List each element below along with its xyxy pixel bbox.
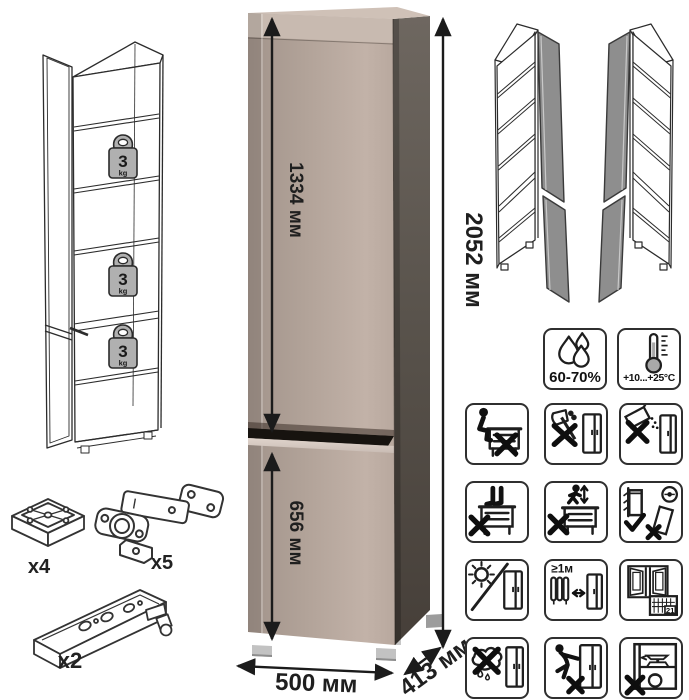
icon-no-direct-sunlight: [465, 559, 529, 621]
humidity-range-label: 60-70%: [549, 369, 601, 386]
check-icon: [626, 515, 644, 529]
calendar-day-label: 21: [666, 606, 675, 615]
foot-glide-drawing: [4, 486, 94, 564]
icon-no-sharp-tools: [544, 403, 608, 465]
wardrobe-icon: [504, 571, 522, 608]
calendar-icon: 21: [650, 596, 677, 615]
feet-icon: [487, 488, 501, 504]
temperature-range-label: +10...+25°C: [623, 373, 676, 384]
cabinet-render-with-dimensions: 1334 мм 2052 мм 656 мм 500 мм 413 мм: [228, 5, 488, 700]
radiator-icon: [551, 578, 568, 605]
icon-no-abrasive-cleaners: [619, 403, 683, 465]
icon-keep-distance-from-heaters: ≥1м: [544, 559, 608, 621]
icon-no-jumping: [544, 481, 608, 543]
icon-anchor-to-wall: [619, 481, 683, 543]
sun-icon: [469, 562, 494, 587]
anvil-icon: [642, 656, 669, 667]
upper-door-height-label: 1334 мм: [285, 162, 306, 238]
icon-humidity: 60-70%: [543, 328, 607, 390]
width-label: 500 мм: [275, 669, 358, 699]
cabinet-front: [248, 13, 395, 645]
door-orientation-options: [480, 6, 688, 318]
wardrobe-icon: [583, 414, 601, 452]
wardrobe-icon: [587, 574, 601, 608]
lower-door-height-label: 656 мм: [285, 500, 306, 565]
thermometer-icon: [646, 334, 667, 372]
up-down-arrow-icon: [581, 486, 587, 503]
kettlebell-icon: [649, 674, 661, 686]
icon-no-dragging: [544, 637, 608, 699]
foot-count-label: x4: [22, 556, 56, 579]
plinth-count-label: x2: [52, 648, 88, 674]
icon-ventilate-room: 21: [619, 559, 683, 621]
icon-temperature: +10...+25°C: [617, 328, 681, 390]
icon-no-sitting: [465, 403, 529, 465]
prohibition-x-icon: [497, 435, 516, 454]
hinge-count-label: x5: [145, 552, 179, 575]
cabinet-render: [248, 7, 442, 661]
assembled-cabinet-wireframe: 3 kg: [26, 38, 176, 463]
open-window-icon: [628, 566, 667, 597]
water-drops-icon: [559, 333, 588, 366]
furniture-spec-infographic: 3 kg: [0, 0, 689, 700]
door-option-unit: [495, 24, 569, 302]
icon-no-heavy-overload: [619, 637, 683, 699]
wardrobe-icon: [506, 647, 523, 686]
weight-unit: kg: [119, 169, 128, 178]
heat-distance-label: ≥1м: [551, 561, 573, 575]
icon-no-standing: [465, 481, 529, 543]
icon-no-wet-cloth: [465, 637, 529, 699]
wardrobe-icon: [660, 415, 676, 452]
left-right-arrow-icon: [573, 590, 584, 596]
wardrobe-icon: [580, 645, 601, 687]
